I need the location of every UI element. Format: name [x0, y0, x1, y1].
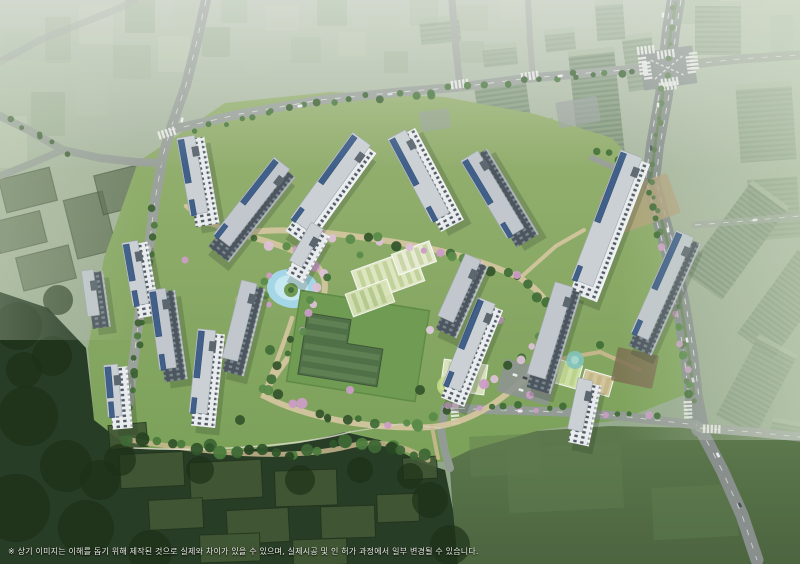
- aerial-site-rendering: ※ 상기 이미지는 이해를 돕기 위해 제작된 것으로 실제와 차이가 있을 수…: [0, 0, 800, 564]
- rendering-canvas: [0, 0, 800, 564]
- haze-tint: [0, 0, 800, 564]
- atmospheric-haze: [0, 0, 800, 564]
- disclaimer-caption: ※ 상기 이미지는 이해를 돕기 위해 제작된 것으로 실제와 차이가 있을 수…: [8, 547, 792, 557]
